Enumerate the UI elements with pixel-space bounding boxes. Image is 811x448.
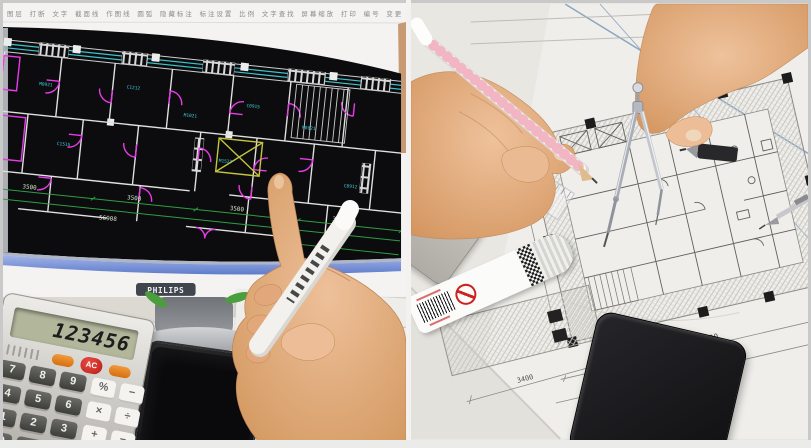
calc-key: 2: [19, 412, 48, 434]
hand-silhouette: [232, 173, 406, 440]
right-photo-blueprint-desk: 9000 30700 2000 3400 0: [411, 3, 808, 440]
calc-key: −: [109, 430, 136, 440]
compass-lead: [604, 233, 608, 247]
photo-collage: 图层 打断 文字 截面线 作图线 圆弧 隐藏标注 标注设置 比例 文字查找 屏幕…: [0, 0, 811, 448]
calc-key: 9: [59, 371, 88, 393]
thumbnail: [686, 129, 702, 141]
calculator-number-keys: 7 8 9 4 5 6 1 2 3 00 .: [3, 359, 87, 440]
calc-key: ÷: [114, 406, 141, 429]
calculator-operator-keys: % − × ÷ + − =: [76, 377, 145, 440]
calc-key: 4: [3, 383, 22, 405]
compass-needle-arm: [658, 189, 662, 215]
compass-needle: [656, 215, 658, 225]
calc-key: 8: [28, 365, 57, 387]
calc-key: +: [80, 424, 107, 440]
pencil-lead: [592, 178, 597, 183]
calculator-function-key: [108, 364, 132, 379]
calc-key: 6: [54, 395, 83, 417]
calc-key: %: [90, 377, 117, 400]
calc-key: 1: [3, 406, 17, 428]
left-photo-cad-monitor: 图层 打断 文字 截面线 作图线 圆弧 隐藏标注 标注设置 比例 文字查找 屏幕…: [3, 3, 406, 440]
calculator-solar-panel: [6, 344, 41, 360]
right-hand: [635, 4, 808, 133]
pencil-eraser-cap: [417, 24, 426, 39]
pointing-hand: [168, 135, 406, 440]
mechanical-pencil: [759, 196, 808, 229]
calculator-ac-key: AC: [79, 356, 104, 376]
calc-key: 5: [24, 389, 53, 411]
calc-key: 00: [3, 430, 13, 440]
calculator-display-value: 123456: [51, 318, 132, 356]
calculator-function-key: [51, 353, 75, 368]
calc-key: 7: [3, 359, 26, 381]
compass-knob: [633, 83, 643, 93]
hands-overlay: [411, 3, 808, 440]
calc-key: −: [118, 383, 145, 406]
calc-key: 3: [49, 418, 78, 440]
compass-lead-arm: [608, 199, 616, 233]
calc-key: ×: [85, 401, 112, 424]
cad-toolbar-text: 图层 打断 文字 截面线 作图线 圆弧 隐藏标注 标注设置 比例 文字查找 屏幕…: [7, 9, 406, 18]
fingertip: [274, 175, 284, 189]
collage-bottom-border: [0, 440, 811, 448]
